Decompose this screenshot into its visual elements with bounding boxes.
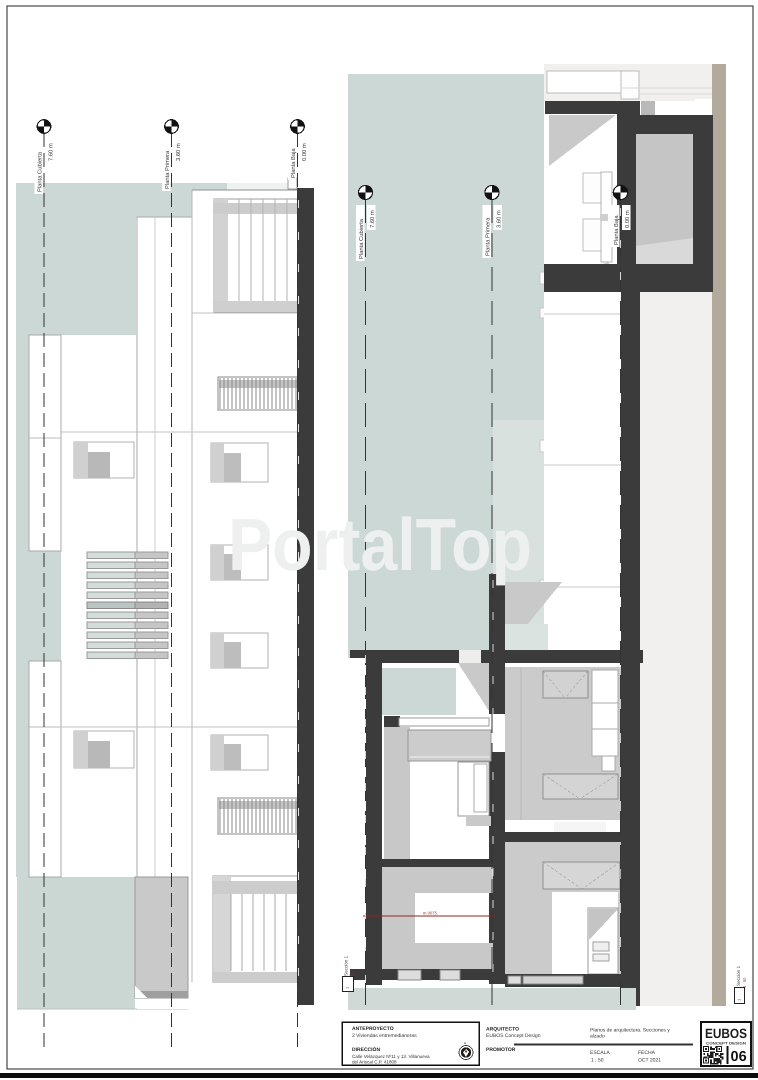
svg-text:1 : 50: 1 : 50 [742, 977, 747, 988]
svg-text:DIRECCIÓN: DIRECCIÓN [352, 1046, 380, 1053]
svg-text:3.60 m: 3.60 m [175, 143, 182, 161]
svg-text:FECHA: FECHA [638, 1050, 656, 1056]
svg-text:PortalTop: PortalTop [228, 503, 532, 586]
svg-text:3.60 m: 3.60 m [495, 210, 502, 228]
svg-text:Planta Baja: Planta Baja [613, 215, 620, 245]
svg-text:06: 06 [731, 1049, 747, 1065]
svg-text:m 0075: m 0075 [423, 911, 438, 916]
svg-text:Planta Cubierta: Planta Cubierta [358, 218, 365, 259]
svg-text:alzado: alzado [590, 1034, 605, 1040]
svg-text:EUBOS Concept Design: EUBOS Concept Design [486, 1033, 541, 1039]
svg-text:ANTEPROYECTO: ANTEPROYECTO [352, 1026, 394, 1032]
svg-text:CONCEPT DESIGN: CONCEPT DESIGN [706, 1042, 746, 1046]
svg-text:Planta Primera: Planta Primera [164, 150, 171, 189]
svg-text:Planta Primera: Planta Primera [484, 217, 491, 256]
svg-text:Sección 1: Sección 1 [344, 955, 349, 976]
svg-text:Planta Cubierta: Planta Cubierta [36, 151, 43, 192]
svg-text:2 Viviendas entremedianeras: 2 Viviendas entremedianeras [352, 1033, 417, 1039]
svg-text:7.60 m: 7.60 m [369, 210, 376, 228]
svg-text:Calle Velázquez Nº11 y 13. Vil: Calle Velázquez Nº11 y 13. Villanueva [352, 1054, 430, 1059]
svg-text:0.00 m: 0.00 m [301, 143, 308, 161]
svg-text:Planta Baja: Planta Baja [290, 148, 297, 178]
svg-text:1 : 50: 1 : 50 [591, 1058, 604, 1064]
svg-text:7.60 m: 7.60 m [47, 143, 54, 161]
svg-text:ESCALA: ESCALA [590, 1050, 610, 1056]
svg-text:OCT 2021: OCT 2021 [638, 1058, 661, 1064]
svg-text:PROMOTOR: PROMOTOR [486, 1047, 516, 1053]
svg-text:ARQUITECTO: ARQUITECTO [486, 1027, 519, 1033]
svg-text:Sección 1: Sección 1 [736, 965, 741, 986]
svg-text:0.00 m: 0.00 m [624, 210, 631, 228]
svg-text:del Ariscal C.P. 41808: del Ariscal C.P. 41808 [352, 1060, 397, 1065]
svg-text:a: a [464, 1041, 466, 1045]
svg-text:EUBOS: EUBOS [705, 1026, 747, 1041]
